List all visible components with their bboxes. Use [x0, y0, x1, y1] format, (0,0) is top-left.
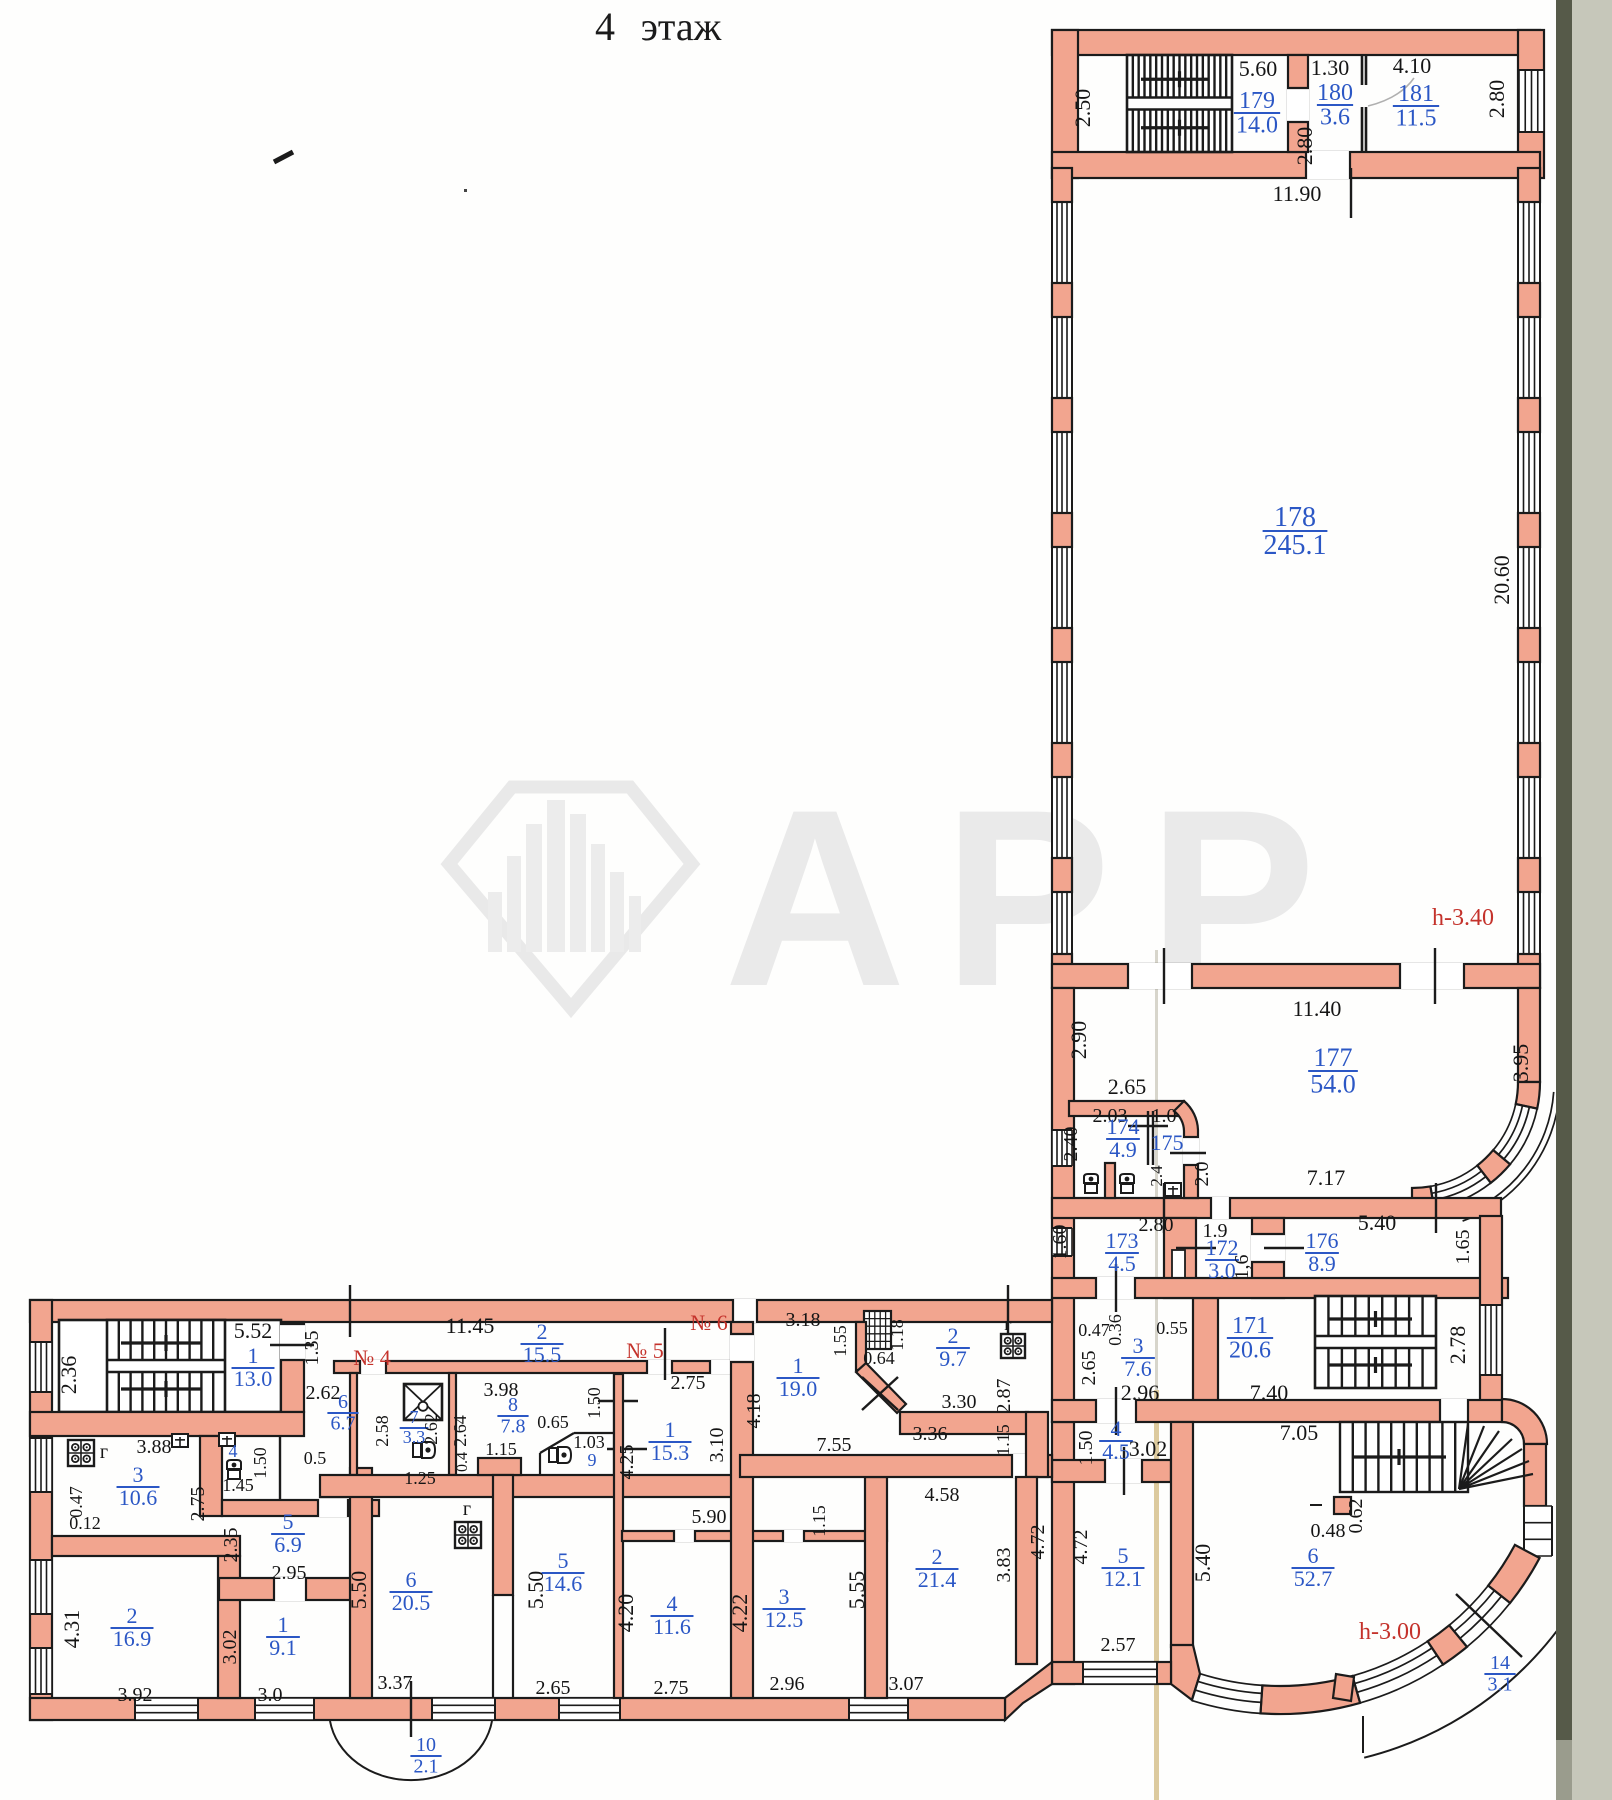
svg-text:20.6: 20.6	[1229, 1338, 1271, 1364]
svg-text:2.65: 2.65	[1108, 1074, 1147, 1099]
svg-text:7.40: 7.40	[1250, 1380, 1289, 1405]
svg-text:2.96: 2.96	[1121, 1380, 1160, 1405]
svg-text:3.37: 3.37	[378, 1672, 413, 1694]
svg-text:2.95: 2.95	[272, 1562, 307, 1584]
svg-text:8.9: 8.9	[1308, 1251, 1336, 1276]
svg-text:4.5: 4.5	[1102, 1439, 1130, 1464]
svg-text:2.58: 2.58	[372, 1415, 392, 1447]
svg-text:178: 178	[1274, 502, 1316, 533]
svg-text:171: 171	[1232, 1313, 1268, 1339]
svg-text:177: 177	[1314, 1043, 1353, 1072]
svg-text:№ 5: № 5	[626, 1338, 664, 1363]
svg-text:3.1: 3.1	[1488, 1673, 1513, 1695]
svg-text:г: г	[1004, 1314, 1011, 1334]
svg-text:3.83: 3.83	[993, 1548, 1015, 1583]
svg-text:3.92: 3.92	[118, 1684, 153, 1706]
svg-text:4.58: 4.58	[925, 1484, 960, 1506]
svg-text:1.15: 1.15	[809, 1505, 829, 1537]
svg-text:12.1: 12.1	[1104, 1566, 1143, 1591]
svg-text:52.7: 52.7	[1294, 1566, 1333, 1591]
svg-text:4: 4	[229, 1441, 238, 1461]
svg-text:3.6: 3.6	[1320, 105, 1350, 131]
svg-text:этаж: этаж	[641, 4, 722, 49]
svg-text:2: 2	[537, 1319, 548, 1344]
svg-text:1.18: 1.18	[887, 1319, 907, 1351]
svg-text:9: 9	[588, 1450, 597, 1470]
svg-text:4.10: 4.10	[1393, 53, 1432, 78]
svg-text:1.65: 1.65	[1452, 1230, 1474, 1265]
svg-text:2.4: 2.4	[1147, 1165, 1166, 1187]
svg-text:4: 4	[667, 1591, 678, 1616]
svg-text:№ 4: № 4	[353, 1345, 391, 1370]
svg-text:2.57: 2.57	[1101, 1634, 1136, 1656]
svg-text:2.65: 2.65	[1078, 1351, 1100, 1386]
svg-text:2.78: 2.78	[1445, 1326, 1470, 1365]
svg-text:14.6: 14.6	[544, 1571, 583, 1596]
svg-text:1: 1	[793, 1353, 804, 1378]
svg-text:5.40: 5.40	[1190, 1544, 1215, 1583]
svg-text:10.6: 10.6	[119, 1485, 158, 1510]
svg-text:0.12: 0.12	[69, 1513, 101, 1533]
svg-text:1.0: 1.0	[1152, 1105, 1177, 1127]
svg-text:1.35: 1.35	[301, 1331, 323, 1366]
svg-text:7.6: 7.6	[1124, 1356, 1152, 1381]
svg-text:2.1: 2.1	[414, 1755, 439, 1777]
svg-text:5.55: 5.55	[844, 1571, 869, 1610]
svg-text:0.64: 0.64	[863, 1348, 895, 1368]
svg-text:3.10: 3.10	[706, 1428, 728, 1463]
svg-text:15.5: 15.5	[523, 1342, 562, 1367]
svg-text:1: 1	[665, 1417, 676, 1442]
svg-text:11.5: 11.5	[1395, 106, 1436, 132]
svg-text:2.80: 2.80	[1484, 80, 1509, 119]
svg-text:14.0: 14.0	[1236, 113, 1278, 139]
svg-text:4: 4	[1111, 1416, 1122, 1441]
svg-text:2: 2	[932, 1544, 943, 1569]
svg-text:4.18: 4.18	[743, 1394, 765, 1429]
svg-text:173: 173	[1106, 1228, 1139, 1253]
svg-text:2.87: 2.87	[993, 1379, 1015, 1414]
svg-text:3: 3	[779, 1584, 790, 1609]
svg-text:0.55: 0.55	[1156, 1318, 1188, 1338]
svg-text:3.02: 3.02	[1129, 1436, 1168, 1461]
svg-text:№ 6: № 6	[690, 1310, 728, 1335]
svg-text:0.65: 0.65	[537, 1412, 569, 1432]
svg-text:174: 174	[1107, 1114, 1140, 1139]
svg-text:7.05: 7.05	[1280, 1420, 1319, 1445]
svg-text:180: 180	[1317, 80, 1353, 106]
svg-text:54.0: 54.0	[1310, 1069, 1356, 1098]
svg-text:5.52: 5.52	[234, 1318, 273, 1343]
svg-text:2.80: 2.80	[1292, 127, 1317, 166]
svg-text:0.36: 0.36	[1105, 1314, 1125, 1346]
svg-text:1.15: 1.15	[485, 1439, 517, 1459]
svg-text:3: 3	[1133, 1333, 1144, 1358]
svg-text:3: 3	[133, 1462, 144, 1487]
svg-text:2.75: 2.75	[671, 1372, 706, 1394]
svg-text:0.4: 0.4	[454, 1452, 471, 1472]
svg-text:2.90: 2.90	[1066, 1021, 1091, 1060]
svg-text:20.5: 20.5	[392, 1590, 431, 1615]
svg-text:5.60: 5.60	[1239, 56, 1278, 81]
svg-text:11.40: 11.40	[1293, 996, 1342, 1021]
svg-text:г: г	[100, 1441, 108, 1463]
svg-text:0.5: 0.5	[304, 1448, 327, 1468]
svg-text:4.72: 4.72	[1027, 1525, 1049, 1560]
svg-text:4.5: 4.5	[1108, 1251, 1136, 1276]
svg-text:4: 4	[595, 4, 615, 49]
svg-text:5.40: 5.40	[1358, 1210, 1397, 1235]
svg-text:4.20: 4.20	[613, 1594, 638, 1633]
svg-text:21.4: 21.4	[918, 1567, 957, 1592]
svg-text:3.07: 3.07	[889, 1673, 924, 1695]
svg-text:1.15: 1.15	[993, 1424, 1013, 1456]
svg-text:19.0: 19.0	[779, 1376, 818, 1401]
svg-text:4.9: 4.9	[1109, 1137, 1137, 1162]
svg-text:1.45: 1.45	[222, 1475, 254, 1495]
svg-text:2.36: 2.36	[56, 1356, 81, 1395]
svg-text:179: 179	[1239, 88, 1275, 114]
svg-text:176: 176	[1306, 1228, 1339, 1253]
svg-text:15.3: 15.3	[651, 1440, 690, 1465]
svg-text:4.25: 4.25	[616, 1445, 638, 1480]
svg-text:20.60: 20.60	[1489, 555, 1514, 605]
svg-text:5.50: 5.50	[523, 1571, 548, 1610]
svg-text:0.62: 0.62	[1345, 1499, 1367, 1534]
svg-text:6.9: 6.9	[274, 1532, 302, 1557]
svg-text:5: 5	[1118, 1543, 1129, 1568]
svg-text:3.02: 3.02	[219, 1630, 241, 1665]
svg-text:8: 8	[508, 1394, 518, 1416]
svg-text:1.55: 1.55	[830, 1325, 850, 1357]
svg-text:2.0: 2.0	[1191, 1162, 1213, 1187]
svg-text:1.50: 1.50	[584, 1387, 604, 1419]
svg-text:5.50: 5.50	[346, 1571, 371, 1610]
svg-text:1.30: 1.30	[1311, 55, 1350, 80]
svg-text:1: 1	[278, 1612, 289, 1637]
svg-text:2.35: 2.35	[220, 1528, 242, 1563]
svg-text:2: 2	[948, 1323, 959, 1348]
svg-text:1.50: 1.50	[1075, 1431, 1097, 1466]
svg-text:6.7: 6.7	[331, 1412, 356, 1434]
svg-text:11.90: 11.90	[1273, 181, 1322, 206]
svg-text:1.25: 1.25	[404, 1468, 436, 1488]
svg-text:12.5: 12.5	[765, 1607, 804, 1632]
svg-text:7: 7	[410, 1407, 419, 1427]
svg-text:16.9: 16.9	[113, 1626, 152, 1651]
svg-text:4.72: 4.72	[1070, 1530, 1092, 1565]
svg-text:6: 6	[406, 1567, 417, 1592]
svg-text:245.1: 245.1	[1264, 530, 1327, 561]
svg-text:5: 5	[283, 1509, 294, 1534]
svg-text:1.03: 1.03	[573, 1432, 605, 1452]
svg-text:h-3.40: h-3.40	[1432, 905, 1494, 931]
svg-text:9.7: 9.7	[939, 1346, 967, 1371]
svg-text:2.75: 2.75	[654, 1677, 689, 1699]
svg-text:2.50: 2.50	[1070, 89, 1095, 128]
svg-text:181: 181	[1398, 81, 1434, 107]
svg-text:3.18: 3.18	[786, 1309, 821, 1331]
svg-text:14: 14	[1490, 1652, 1510, 1674]
svg-text:1: 1	[248, 1343, 259, 1368]
svg-text:4.31: 4.31	[59, 1610, 84, 1649]
svg-text:9.1: 9.1	[269, 1635, 297, 1660]
svg-text:APP: APP	[724, 758, 1336, 1039]
svg-text:2.75: 2.75	[187, 1487, 209, 1522]
svg-text:6: 6	[338, 1391, 348, 1413]
svg-text:3.30: 3.30	[942, 1391, 977, 1413]
svg-text:0.48: 0.48	[1311, 1520, 1346, 1542]
svg-text:11.45: 11.45	[446, 1313, 495, 1338]
svg-text:3.36: 3.36	[913, 1423, 948, 1445]
svg-text:3.0: 3.0	[258, 1684, 283, 1706]
svg-text:2: 2	[127, 1603, 138, 1628]
svg-text:3.88: 3.88	[137, 1436, 172, 1458]
svg-text:7.17: 7.17	[1307, 1165, 1346, 1190]
svg-text:г: г	[463, 1498, 471, 1520]
svg-text:11.6: 11.6	[653, 1614, 691, 1639]
svg-text:7.55: 7.55	[817, 1434, 852, 1456]
svg-text:4.22: 4.22	[727, 1594, 752, 1633]
svg-text:175: 175	[1151, 1130, 1184, 1155]
svg-text:1,6: 1,6	[1231, 1255, 1253, 1280]
svg-text:2.96: 2.96	[770, 1673, 805, 1695]
svg-text:13.0: 13.0	[234, 1366, 273, 1391]
svg-text:5: 5	[558, 1548, 569, 1573]
svg-text:h-3.00: h-3.00	[1359, 1619, 1421, 1645]
svg-text:3.95: 3.95	[1508, 1044, 1533, 1083]
svg-text:2.62: 2.62	[421, 1413, 441, 1445]
svg-text:1.60: 1.60	[1049, 1225, 1071, 1260]
svg-text:2.64: 2.64	[450, 1415, 470, 1447]
svg-text:7.8: 7.8	[501, 1415, 526, 1437]
svg-text:6: 6	[1308, 1543, 1319, 1568]
svg-text:5.90: 5.90	[692, 1506, 727, 1528]
svg-text:2.65: 2.65	[536, 1677, 571, 1699]
svg-text:2.40: 2.40	[1060, 1127, 1082, 1162]
svg-text:2.80: 2.80	[1139, 1214, 1174, 1236]
svg-text:10: 10	[416, 1734, 436, 1756]
svg-text:2.62: 2.62	[306, 1382, 341, 1404]
